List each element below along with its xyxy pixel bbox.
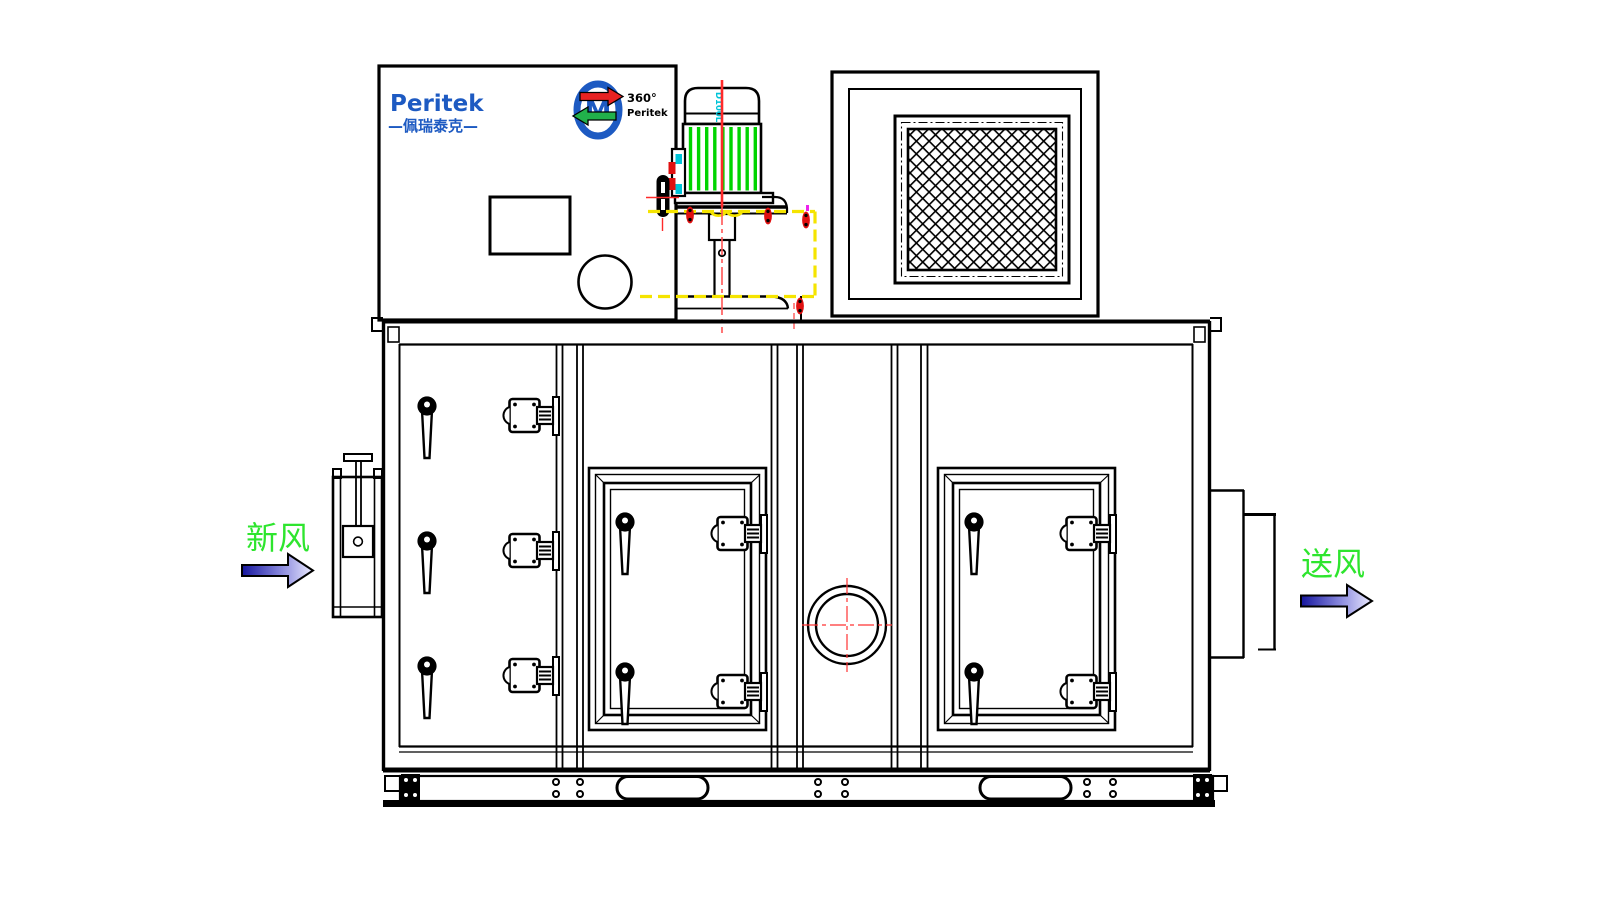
drawing-canvas: Peritek —佩瑞泰克— M 360° Peritek D100L [0, 0, 1613, 897]
bolt-marker [764, 208, 772, 225]
brand-logo: Peritek —佩瑞泰克— [388, 91, 484, 135]
fresh-air-damper [333, 454, 382, 617]
dehumidifier-front-view: Peritek —佩瑞泰克— M 360° Peritek D100L [0, 0, 1613, 897]
cyan-accent [676, 154, 683, 164]
base-frame [383, 774, 1227, 807]
fresh-air-label: 新风 [246, 519, 310, 557]
cyan-accent [676, 184, 683, 194]
base-ground-line [383, 800, 1215, 807]
anchor-bracket [1193, 774, 1212, 801]
anchor-bracket [401, 774, 420, 801]
red-tab [669, 178, 676, 190]
red-tab [669, 162, 676, 174]
magenta-tick [806, 205, 809, 211]
lifting-slot [617, 777, 708, 800]
grille-mesh [908, 129, 1056, 270]
bolt-marker [802, 212, 810, 229]
lifting-slot [980, 777, 1071, 800]
paper-background [0, 0, 1613, 897]
bolt-marker [796, 298, 804, 315]
supply-air-label: 送风 [1301, 545, 1365, 583]
brand-logo-cn: —佩瑞泰克— [388, 117, 478, 135]
rotor-badge-bottom: Peritek [627, 108, 668, 119]
rotor-badge-top: 360° [627, 91, 657, 105]
motor-terminal-bracket [669, 149, 686, 196]
brand-logo-text: Peritek [390, 91, 484, 117]
bolt-marker [686, 207, 694, 224]
